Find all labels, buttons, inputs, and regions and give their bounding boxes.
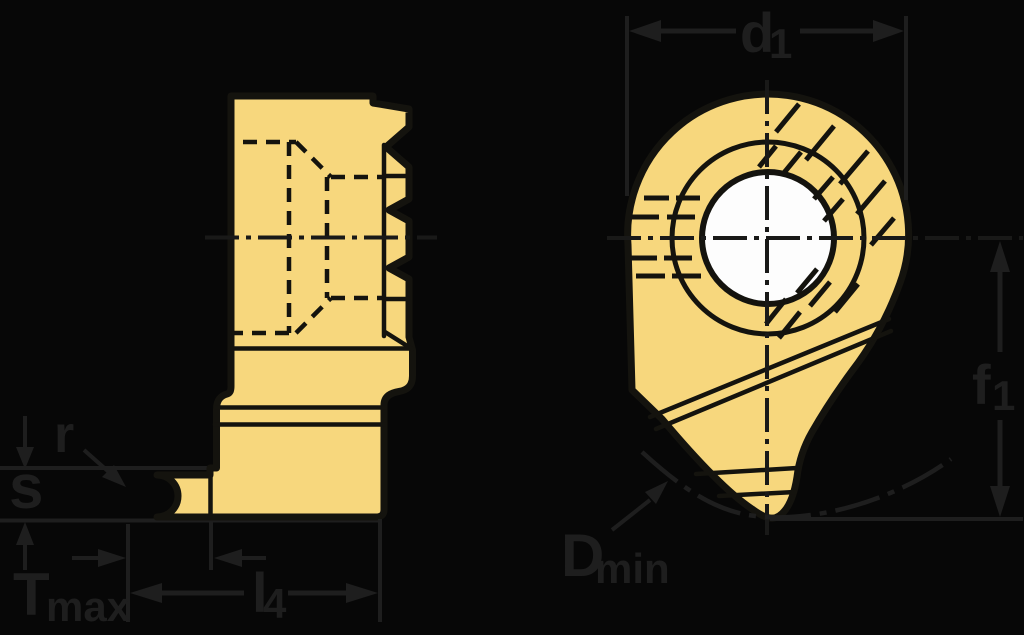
- side-view: [157, 96, 437, 517]
- l4-arrowhead-left: [130, 583, 162, 603]
- f1-arrowhead-top: [990, 241, 1010, 272]
- l4-arrowhead-right: [346, 583, 378, 603]
- dmin-leader-line: [612, 500, 650, 530]
- s-lower-arrowhead: [16, 522, 34, 545]
- technical-drawing-canvas: d 1 f 1 D min r s T max: [0, 0, 1024, 635]
- tmax-arrowhead-right: [214, 549, 242, 567]
- label-f1-subscript: 1: [992, 372, 1015, 419]
- side-view-body: [157, 96, 413, 517]
- tmax-arrowhead-left: [98, 549, 126, 567]
- d1-arrowhead-left: [629, 20, 661, 42]
- label-tmax-base: T: [13, 561, 50, 628]
- label-dmin-subscript: min: [595, 545, 670, 592]
- f1-arrowhead-bottom: [990, 486, 1010, 517]
- front-view: [607, 80, 1023, 535]
- dimension-tmax: T max: [13, 521, 266, 630]
- label-r: r: [54, 406, 74, 464]
- dimension-l4: l 4: [130, 519, 380, 627]
- label-tmax-subscript: max: [46, 583, 131, 630]
- dimension-r: r: [54, 406, 126, 487]
- label-d1-subscript: 1: [769, 20, 792, 67]
- insert-dimension-diagram: d 1 f 1 D min r s T max: [0, 0, 1024, 635]
- label-l4-subscript: 4: [263, 580, 287, 627]
- label-f1-base: f: [972, 353, 991, 416]
- label-s: s: [9, 453, 43, 522]
- d1-arrowhead-right: [873, 20, 904, 42]
